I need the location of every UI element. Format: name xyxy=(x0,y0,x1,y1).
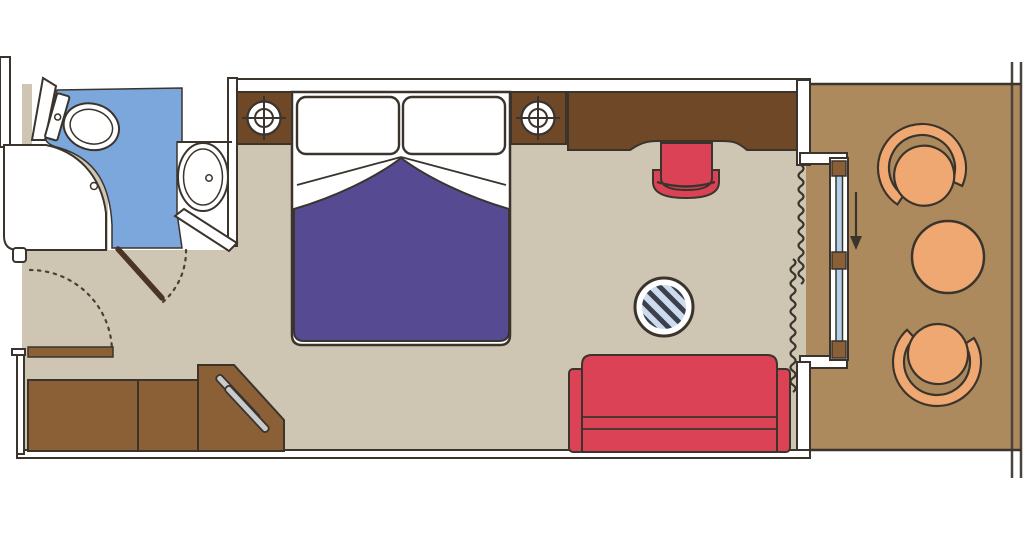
bathroom-right-wall xyxy=(228,78,237,246)
pillow-right xyxy=(403,97,505,154)
washbasin-drain xyxy=(206,175,212,181)
sofa-body xyxy=(582,355,777,452)
left-wall-lower xyxy=(17,350,24,454)
sofa xyxy=(569,355,790,452)
cabin-floor-plan xyxy=(0,0,1024,541)
toilet-flush-button xyxy=(54,113,61,120)
floor-plan-page xyxy=(0,0,1024,541)
washbasin-outer xyxy=(178,143,228,211)
washbasin xyxy=(178,143,228,211)
corridor-wall-stub xyxy=(0,57,10,147)
wardrobe-unit-2 xyxy=(138,380,198,451)
desk xyxy=(568,92,797,150)
double-bed xyxy=(292,92,510,345)
right-wall-lower xyxy=(797,362,810,458)
wardrobe-unit-1 xyxy=(28,380,138,451)
pillow-left xyxy=(297,97,399,154)
entry-door-leaf xyxy=(28,347,113,357)
desk-chair xyxy=(653,143,719,198)
left-wall-cap xyxy=(12,349,25,355)
desk-chair-seat xyxy=(661,143,712,190)
bathroom xyxy=(4,78,237,251)
entry-wall-end-cap xyxy=(13,248,26,262)
shower-door-handle xyxy=(91,183,98,190)
balcony-table xyxy=(912,221,984,293)
